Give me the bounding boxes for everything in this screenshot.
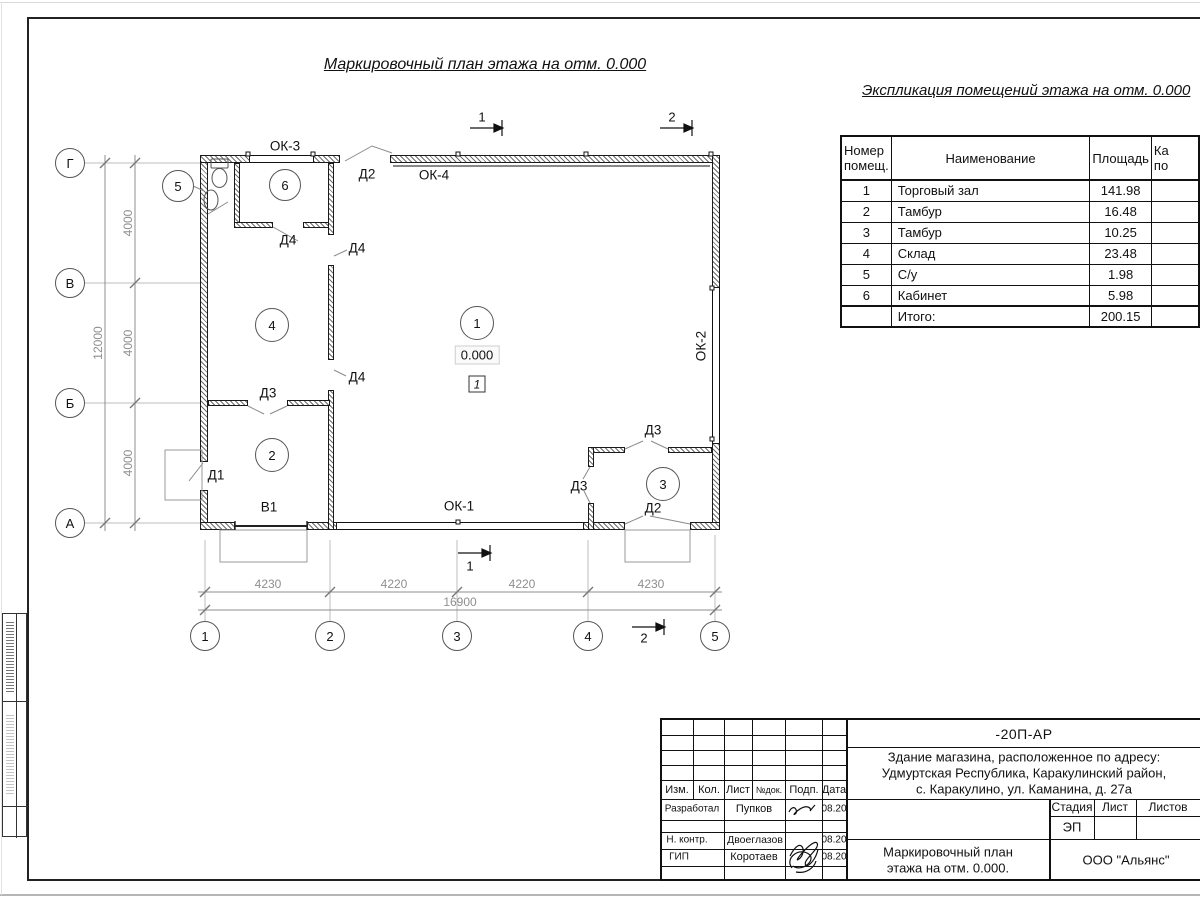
label-d1: Д1 (208, 468, 225, 483)
explication-row-4: 4 Склад 23.48 (841, 243, 1199, 264)
row4-num: 4 (841, 243, 891, 264)
tb-sheet-label: Лист (1102, 800, 1128, 814)
explication-row-3: 3 Тамбур 10.25 (841, 222, 1199, 243)
row5-num: 5 (841, 264, 891, 285)
tb-company: ООО "Альянс" (1083, 853, 1170, 868)
tb-h2 (662, 750, 847, 751)
tb-address-l2: Удмуртская Республика, Каракулинский рай… (882, 766, 1166, 781)
tb-address-l1: Здание магазина, расположенное по адресу… (888, 750, 1160, 765)
dim-4220-b: 4220 (509, 577, 536, 591)
tb-drawing-name-l1: Маркировочный план (883, 845, 1013, 860)
tb-h5 (662, 799, 847, 800)
tb-v3 (752, 720, 753, 799)
col-header-cat: Ка по (1151, 136, 1199, 180)
tb-role-gip: ГИП (669, 852, 689, 863)
row4-cat (1151, 243, 1199, 264)
explication-row-6: 6 Кабинет 5.98 (841, 285, 1199, 306)
label-ok2: ОК-2 (694, 331, 709, 361)
tb-v1 (693, 720, 694, 799)
tb-h10 (847, 747, 1200, 748)
col-header-num: Номер помещ. (841, 136, 891, 180)
section-1-bottom-label: 1 (466, 559, 473, 574)
explication-row-2: 2 Тамбур 16.48 (841, 201, 1199, 222)
room-3-number: 3 (659, 477, 666, 492)
dim-4220-a: 4220 (381, 577, 408, 591)
axis-circle-g: Г (55, 148, 85, 178)
total-num (841, 306, 891, 327)
drawing-sheet: Маркировочный план этажа на отм. 0.000 (0, 0, 1200, 900)
tb-h13 (847, 839, 1200, 840)
axis-lines (84, 163, 715, 622)
axis-circle-a: А (55, 508, 85, 538)
col-header-num-l2: помещ. (844, 158, 889, 173)
total-cat (1151, 306, 1199, 327)
tb-h7 (662, 832, 847, 833)
row6-num: 6 (841, 285, 891, 306)
tb-date-3: 08.20 (821, 852, 846, 863)
explication-header-row: Номер помещ. Наименование Площадь Ка по (841, 136, 1199, 180)
row2-area: 16.48 (1090, 201, 1152, 222)
axis-circle-v: В (55, 268, 85, 298)
tb-col-list: Лист (726, 784, 750, 796)
toilet-icon (211, 159, 228, 188)
label-d3-c: Д3 (571, 479, 588, 494)
room-circle-1: 1 (460, 306, 494, 340)
tb-col-data: Дата (822, 784, 846, 796)
column-circle-5: 5 (700, 621, 730, 651)
row4-area: 23.48 (1090, 243, 1152, 264)
tb-v9 (1136, 799, 1137, 839)
section-2-bottom-label: 2 (640, 631, 647, 646)
row2-name: Тамбур (891, 201, 1090, 222)
tb-v8 (1094, 799, 1095, 839)
row6-name: Кабинет (891, 285, 1090, 306)
room-4-number: 4 (268, 318, 275, 333)
label-d4-c: Д4 (349, 370, 366, 385)
label-d3-b: Д3 (645, 423, 662, 438)
row4-name: Склад (891, 243, 1090, 264)
axis-g-label: Г (66, 156, 73, 171)
room-circle-6: 6 (269, 169, 301, 201)
room-2-number: 2 (268, 448, 275, 463)
tb-stage-value: ЭП (1063, 820, 1082, 835)
label-d4-a: Д4 (280, 233, 297, 248)
row1-cat (1151, 180, 1199, 201)
dim-16900: 16900 (443, 595, 476, 609)
tb-h11 (847, 799, 1200, 800)
explication-row-5: 5 С/у 1.98 (841, 264, 1199, 285)
dim-4230-a: 4230 (255, 577, 282, 591)
column-3-label: 3 (453, 629, 460, 644)
row6-cat (1151, 285, 1199, 306)
column-circle-3: 3 (442, 621, 472, 651)
tb-drawing-name-l2: этажа на отм. 0.000. (887, 861, 1009, 876)
dimension-lines (105, 155, 722, 610)
row6-area: 5.98 (1090, 285, 1152, 306)
tb-role-razrabotal: Разработал (665, 804, 719, 815)
explication-table: Номер помещ. Наименование Площадь Ка по … (840, 135, 1200, 328)
tb-h4 (662, 780, 847, 781)
tb-date-1: 08.20 (821, 804, 846, 815)
section-1-top-label: 1 (478, 110, 485, 125)
column-circle-4: 4 (573, 621, 603, 651)
label-d4-b: Д4 (349, 241, 366, 256)
sink-icon (204, 190, 218, 210)
tb-col-ndok: №док. (756, 785, 782, 795)
col-header-cat-l1: Ка (1154, 143, 1196, 158)
gate-v1 (235, 521, 307, 530)
axis-b-label: Б (66, 396, 75, 411)
column-2-label: 2 (326, 629, 333, 644)
axis-v-label: В (66, 276, 75, 291)
tb-col-podp: Подп. (789, 784, 818, 796)
porch-outlines (165, 450, 690, 562)
room-5-number: 5 (174, 179, 181, 194)
label-ok1: ОК-1 (444, 499, 474, 514)
row1-num: 1 (841, 180, 891, 201)
label-d2-b: Д2 (645, 501, 662, 516)
room-circle-3: 3 (646, 467, 680, 501)
row3-cat (1151, 222, 1199, 243)
title-block: Изм. Кол. Лист №док. Подп. Дата Разработ… (660, 718, 1200, 881)
tb-stage-label: Стадия (1052, 800, 1093, 814)
total-area: 200.15 (1090, 306, 1152, 327)
section-2-top-label: 2 (668, 110, 675, 125)
elevation-mark: 0.000 (455, 346, 500, 365)
dim-4000-a: 4000 (121, 210, 135, 237)
tb-col-kol: Кол. (698, 784, 720, 796)
dimension-ticks (100, 158, 720, 615)
room-6-number: 6 (281, 178, 288, 193)
explication-row-1: 1 Торговый зал 141.98 (841, 180, 1199, 201)
room-circle-5: 5 (162, 170, 194, 202)
dim-4000-b: 4000 (121, 330, 135, 357)
dim-4230-b: 4230 (638, 577, 665, 591)
tb-address-l3: с. Каракулино, ул. Каманина, д. 27а (916, 782, 1132, 797)
row3-name: Тамбур (891, 222, 1090, 243)
label-d3-a: Д3 (260, 386, 277, 401)
tb-name-korotaev: Коротаев (730, 851, 778, 863)
row5-area: 1.98 (1090, 264, 1152, 285)
tb-name-dvoeglazov: Двоеглазов (727, 834, 783, 846)
tb-h6 (662, 820, 847, 821)
tb-doc-number: -20П-АР (995, 726, 1052, 742)
col-header-cat-l2: по (1154, 158, 1196, 173)
tb-role-nkontr: Н. контр. (666, 835, 707, 846)
label-v1: В1 (261, 500, 278, 515)
column-4-label: 4 (584, 629, 591, 644)
col-header-name: Наименование (891, 136, 1090, 180)
row3-num: 3 (841, 222, 891, 243)
tb-name-pupkov: Пупков (736, 803, 772, 815)
tb-h3 (662, 765, 847, 766)
row1-name: Торговый зал (891, 180, 1090, 201)
total-label: Итого: (891, 306, 1090, 327)
column-circle-1: 1 (190, 621, 220, 651)
tb-h1 (662, 735, 847, 736)
section-arrows (458, 120, 693, 635)
floor-type-mark: 1 (469, 376, 486, 393)
column-circle-2: 2 (315, 621, 345, 651)
dim-4000-c: 4000 (121, 450, 135, 477)
col-header-area: Площадь (1090, 136, 1152, 180)
row2-num: 2 (841, 201, 891, 222)
room-circle-4: 4 (255, 308, 289, 342)
room-1-number: 1 (473, 316, 480, 331)
col-header-num-l1: Номер (844, 143, 889, 158)
tb-col-izm: Изм. (665, 784, 689, 796)
label-d2-top: Д2 (359, 167, 376, 182)
dim-12000: 12000 (91, 326, 105, 359)
column-5-label: 5 (711, 629, 718, 644)
explication-title: Экспликация помещений этажа на отм. 0.00… (862, 82, 1190, 99)
tb-date-2: 08.20 (821, 835, 846, 846)
tb-h12 (1049, 816, 1200, 817)
tb-h8 (662, 849, 847, 850)
row5-name: С/у (891, 264, 1090, 285)
row5-cat (1151, 264, 1199, 285)
label-ok3: ОК-3 (270, 139, 300, 154)
label-ok4: ОК-4 (419, 168, 449, 183)
tb-sheets-label: Листов (1149, 800, 1188, 814)
row3-area: 10.25 (1090, 222, 1152, 243)
room-circle-2: 2 (255, 438, 289, 472)
row1-area: 141.98 (1090, 180, 1152, 201)
axis-circle-b: Б (55, 388, 85, 418)
row2-cat (1151, 201, 1199, 222)
axis-a-label: А (66, 516, 75, 531)
column-1-label: 1 (201, 629, 208, 644)
explication-total-row: Итого: 200.15 (841, 306, 1199, 327)
tb-h9 (662, 866, 847, 867)
